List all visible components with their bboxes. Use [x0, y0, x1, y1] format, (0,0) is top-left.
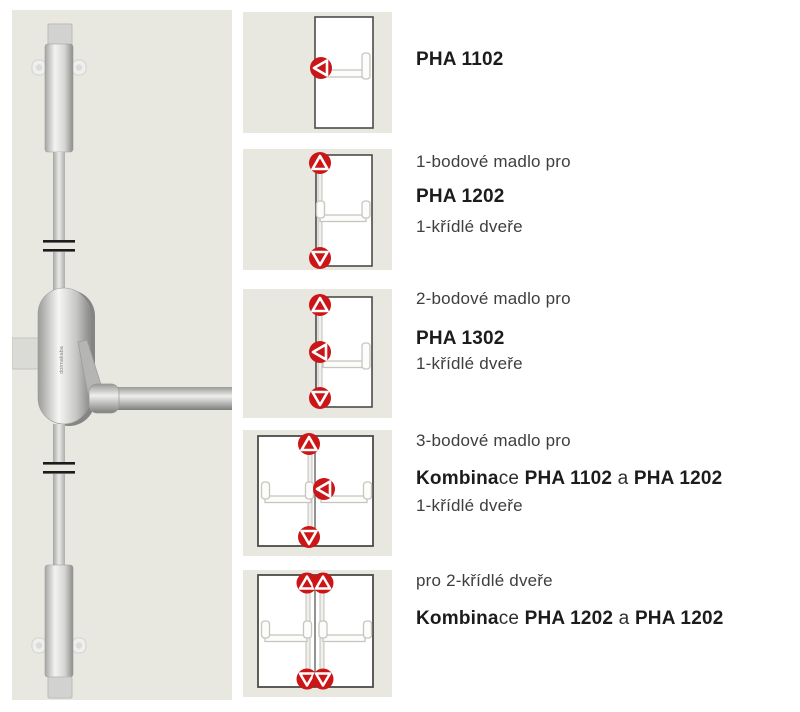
diagram-pha-1202 — [243, 149, 392, 270]
rod-break-mark-upper — [43, 240, 75, 252]
lock-point-left-icon — [313, 478, 335, 500]
brand-label: dormakaba — [59, 345, 65, 373]
vertical-rod-lower — [53, 424, 65, 462]
push-bar-end-cap — [89, 384, 119, 413]
lock-point-down-icon — [309, 247, 331, 269]
lock-point-left-icon — [310, 57, 332, 79]
diagram-pha-1102 — [243, 12, 392, 133]
top-guide — [45, 44, 73, 152]
product-title: PHA 1102 — [416, 48, 788, 71]
latch-bolt — [12, 338, 39, 369]
bottom-bolt — [48, 677, 72, 698]
product-title: PHA 1302 — [416, 327, 788, 350]
product-title: Kombinace PHA 1202 a PHA 1202 — [416, 607, 788, 630]
product-photo-panel: dormakaba — [12, 10, 232, 700]
vertical-rod-bottom — [53, 474, 65, 566]
rod-break-mark-lower — [43, 462, 75, 474]
lock-point-left-icon — [309, 341, 331, 363]
vertical-rod-mid — [53, 252, 65, 292]
diagram-kombinace-1102-1202 — [243, 430, 392, 556]
diagram-pha-1302 — [243, 289, 392, 418]
lock-point-up-icon — [309, 152, 331, 174]
product-description: pro 2-křídlé dveře — [416, 667, 788, 712]
lock-point-up-icon — [298, 433, 320, 455]
lock-point-down-icon — [298, 526, 320, 548]
product-entry-kombinace-1202-1202: Kombinace PHA 1202 a PHA 1202 pro 2-kříd… — [416, 571, 788, 712]
vertical-rod-upper — [53, 152, 65, 240]
lock-point-up-icon — [309, 294, 331, 316]
lock-point-down-icon — [313, 669, 334, 690]
bottom-guide — [45, 565, 73, 677]
push-bar — [112, 387, 232, 410]
product-title: PHA 1202 — [416, 185, 788, 208]
diagram-kombinace-1202-1202 — [243, 570, 392, 697]
panic-device-photo: dormakaba — [12, 10, 232, 700]
product-title: Kombinace PHA 1102 a PHA 1202 — [416, 467, 788, 490]
lock-point-down-icon — [309, 387, 331, 409]
lock-point-up-icon — [313, 573, 334, 594]
